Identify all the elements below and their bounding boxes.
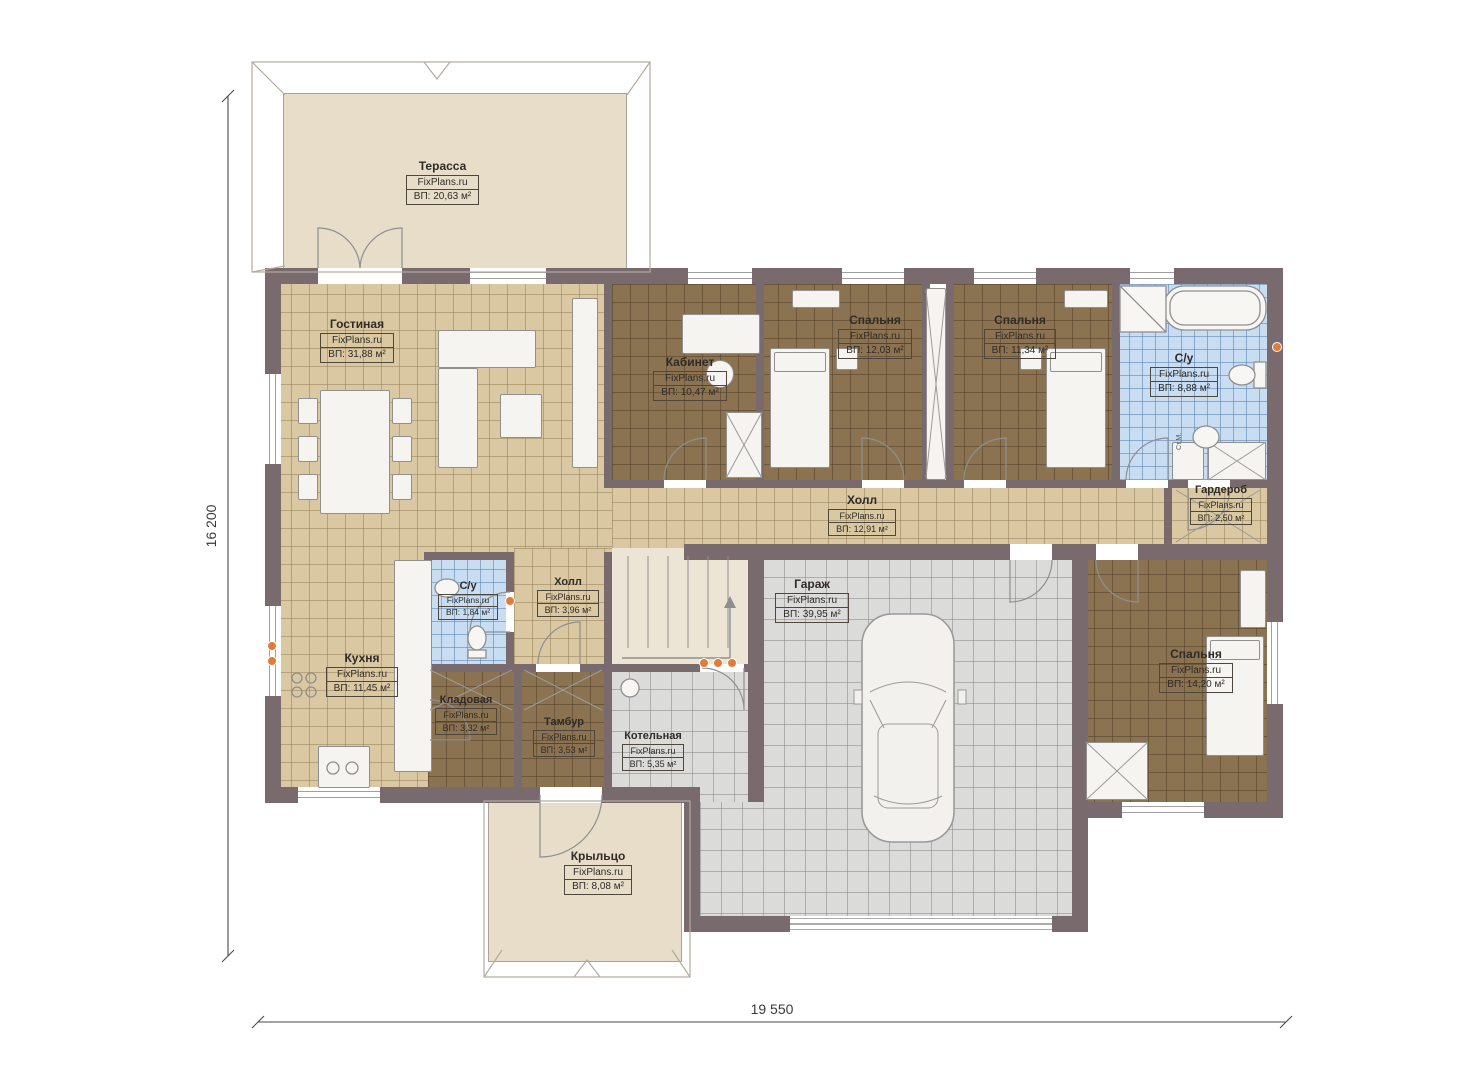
watermark: FixPlans.ru bbox=[534, 731, 595, 744]
stairs-area bbox=[612, 548, 752, 672]
kitchen-appliance bbox=[318, 746, 370, 788]
room-name: Гостиная bbox=[296, 318, 418, 332]
room-label-storage: Кладовая FixPlans.ru ВП: 3,32 м² bbox=[412, 694, 520, 736]
room-name: Гардероб bbox=[1172, 484, 1270, 497]
label-box: FixPlans.ru ВП: 12,91 м² bbox=[828, 509, 896, 537]
label-box: FixPlans.ru ВП: 12,03 м² bbox=[838, 329, 911, 359]
room-area: ВП: 31,88 м² bbox=[321, 348, 392, 362]
bath-cabinet bbox=[1208, 442, 1266, 480]
wall bbox=[1072, 560, 1088, 916]
room-name: Кладовая bbox=[412, 694, 520, 707]
room-area: ВП: 14,20 м² bbox=[1160, 678, 1231, 692]
watermark: FixPlans.ru bbox=[321, 334, 392, 349]
watermark: FixPlans.ru bbox=[654, 372, 725, 387]
room-label-kitchen: Кухня FixPlans.ru ВП: 11,45 м² bbox=[302, 652, 422, 697]
room-name: С/у bbox=[424, 580, 512, 593]
watermark: FixPlans.ru bbox=[839, 330, 910, 345]
dresser bbox=[792, 290, 840, 308]
room-area: ВП: 3,96 м² bbox=[538, 604, 599, 616]
room-name: Спальня bbox=[814, 314, 936, 328]
watermark: FixPlans.ru bbox=[436, 709, 497, 722]
chair bbox=[298, 398, 318, 424]
watermark: FixPlans.ru bbox=[407, 176, 478, 191]
room-name: Крыльцо bbox=[536, 850, 660, 864]
label-box: FixPlans.ru ВП: 10,47 м² bbox=[653, 371, 726, 401]
room-area: ВП: 3,32 м² bbox=[436, 722, 497, 734]
chair bbox=[392, 436, 412, 462]
room-label-wc: С/у FixPlans.ru ВП: 1,84 м² bbox=[424, 580, 512, 621]
floor-plan: Ст.М. bbox=[0, 0, 1474, 1080]
room-label-hall: Холл FixPlans.ru ВП: 12,91 м² bbox=[802, 494, 922, 538]
door-gap bbox=[862, 480, 904, 488]
dimension-height-label: 16 200 bbox=[203, 504, 219, 547]
room-area: ВП: 10,47 м² bbox=[654, 386, 725, 400]
room-area: ВП: 11,45 м² bbox=[327, 682, 398, 696]
label-box: FixPlans.ru ВП: 31,88 м² bbox=[320, 333, 393, 363]
room-name: Спальня bbox=[1134, 648, 1258, 662]
label-box: FixPlans.ru ВП: 3,96 м² bbox=[537, 590, 600, 618]
room-name: Холл bbox=[802, 494, 922, 508]
watermark: FixPlans.ru bbox=[1160, 664, 1231, 679]
watermark: FixPlans.ru bbox=[829, 510, 895, 523]
label-box: FixPlans.ru ВП: 11,34 м² bbox=[984, 329, 1057, 359]
sofa bbox=[438, 368, 478, 468]
door-gap bbox=[700, 664, 744, 672]
room-label-office: Кабинет FixPlans.ru ВП: 10,47 м² bbox=[628, 356, 752, 401]
door-gap bbox=[664, 480, 706, 488]
label-box: FixPlans.ru ВП: 2,50 м² bbox=[1190, 498, 1253, 526]
wall bbox=[684, 544, 1283, 560]
chair bbox=[298, 436, 318, 462]
dresser bbox=[1240, 570, 1266, 628]
room-label-living: Гостиная FixPlans.ru ВП: 31,88 м² bbox=[296, 318, 418, 363]
room-name: Тамбур bbox=[512, 716, 616, 729]
dimension-width-label: 19 550 bbox=[751, 1001, 794, 1017]
wall bbox=[1112, 284, 1120, 480]
window bbox=[470, 268, 546, 284]
label-box: FixPlans.ru ВП: 3,32 м² bbox=[435, 708, 498, 736]
room-name: Гараж bbox=[752, 578, 872, 592]
room-name: Котельная bbox=[594, 730, 712, 743]
chair bbox=[392, 398, 412, 424]
room-name: Холл bbox=[518, 576, 618, 589]
watermark: FixPlans.ru bbox=[1191, 499, 1252, 512]
wall bbox=[604, 284, 612, 488]
chair bbox=[298, 474, 318, 500]
label-box: FixPlans.ru ВП: 5,35 м² bbox=[622, 744, 685, 772]
room-label-bedroom3: Спальня FixPlans.ru ВП: 14,20 м² bbox=[1134, 648, 1258, 693]
room-area: ВП: 11,34 м² bbox=[985, 344, 1056, 358]
door-gap bbox=[1096, 544, 1138, 560]
watermark: FixPlans.ru bbox=[623, 745, 684, 758]
window bbox=[265, 606, 281, 696]
sofa bbox=[438, 330, 536, 368]
room-label-bedroom1: Спальня FixPlans.ru ВП: 12,03 м² bbox=[814, 314, 936, 359]
washing-machine-label: Ст.М. bbox=[1176, 433, 1183, 450]
watermark: FixPlans.ru bbox=[1151, 368, 1217, 383]
watermark: FixPlans.ru bbox=[538, 591, 599, 604]
watermark: FixPlans.ru bbox=[985, 330, 1056, 345]
room-area: ВП: 2,50 м² bbox=[1191, 512, 1252, 524]
label-box: FixPlans.ru ВП: 39,95 м² bbox=[775, 593, 848, 623]
wall bbox=[424, 552, 514, 560]
room-name: Терасса bbox=[380, 160, 505, 174]
room-area: ВП: 1,84 м² bbox=[439, 607, 497, 619]
door-gap bbox=[964, 480, 1006, 488]
room-area: ВП: 3,53 м² bbox=[534, 744, 595, 756]
window bbox=[1122, 802, 1204, 818]
room-area: ВП: 5,35 м² bbox=[623, 758, 684, 770]
watermark: FixPlans.ru bbox=[776, 594, 847, 609]
room-label-porch: Крыльцо FixPlans.ru ВП: 8,08 м² bbox=[536, 850, 660, 895]
watermark: FixPlans.ru bbox=[565, 866, 631, 881]
label-box: FixPlans.ru ВП: 3,53 м² bbox=[533, 730, 596, 758]
door-gap bbox=[536, 664, 580, 672]
label-box: FixPlans.ru ВП: 1,84 м² bbox=[438, 594, 498, 621]
room-area: ВП: 39,95 м² bbox=[776, 608, 847, 622]
window bbox=[1130, 268, 1174, 284]
room-name: Кабинет bbox=[628, 356, 752, 370]
label-box: FixPlans.ru ВП: 20,63 м² bbox=[406, 175, 479, 205]
room-area: ВП: 8,88 м² bbox=[1151, 382, 1217, 396]
watermark: FixPlans.ru bbox=[439, 595, 497, 608]
terrace-door-opening bbox=[318, 268, 402, 284]
chair bbox=[392, 474, 412, 500]
room-label-hall2: Холл FixPlans.ru ВП: 3,96 м² bbox=[518, 576, 618, 618]
room-area: ВП: 20,63 м² bbox=[407, 190, 478, 204]
room-label-bedroom2: Спальня FixPlans.ru ВП: 11,34 м² bbox=[958, 314, 1082, 359]
window bbox=[842, 268, 904, 284]
room-label-wardrobe: Гардероб FixPlans.ru ВП: 2,50 м² bbox=[1172, 484, 1270, 526]
wall bbox=[265, 268, 281, 803]
label-box: FixPlans.ru ВП: 8,08 м² bbox=[564, 865, 632, 895]
tv-console bbox=[572, 298, 598, 468]
wall bbox=[684, 787, 700, 932]
window bbox=[688, 268, 752, 284]
wall bbox=[1164, 480, 1172, 544]
room-name: Спальня bbox=[958, 314, 1082, 328]
room-area: ВП: 12,91 м² bbox=[829, 523, 895, 535]
desk bbox=[682, 314, 760, 354]
room-name: С/у bbox=[1128, 352, 1240, 366]
room-area: ВП: 12,03 м² bbox=[839, 344, 910, 358]
room-label-terrace: Терасса FixPlans.ru ВП: 20,63 м² bbox=[380, 160, 505, 205]
wardrobe-cabinet bbox=[1086, 742, 1148, 800]
garage-door-opening bbox=[790, 916, 1052, 932]
room-name: Кухня bbox=[302, 652, 422, 666]
window bbox=[974, 268, 1036, 284]
door-gap bbox=[1126, 480, 1168, 488]
window bbox=[265, 374, 281, 464]
room-label-garage: Гараж FixPlans.ru ВП: 39,95 м² bbox=[752, 578, 872, 623]
armchair bbox=[500, 394, 542, 438]
wall bbox=[1267, 268, 1283, 818]
label-box: FixPlans.ru ВП: 11,45 м² bbox=[326, 667, 399, 697]
window bbox=[298, 787, 380, 803]
window bbox=[1267, 622, 1283, 704]
door-gap bbox=[1010, 544, 1052, 560]
label-box: FixPlans.ru ВП: 8,88 м² bbox=[1150, 367, 1218, 397]
room-area: ВП: 8,08 м² bbox=[565, 880, 631, 894]
entrance-door-opening bbox=[540, 787, 602, 803]
room-label-bathroom: С/у FixPlans.ru ВП: 8,88 м² bbox=[1128, 352, 1240, 397]
dining-table bbox=[320, 390, 390, 514]
watermark: FixPlans.ru bbox=[327, 668, 398, 683]
cabinet bbox=[726, 412, 762, 478]
room-label-boiler: Котельная FixPlans.ru ВП: 5,35 м² bbox=[594, 730, 712, 772]
label-box: FixPlans.ru ВП: 14,20 м² bbox=[1159, 663, 1232, 693]
wall bbox=[946, 284, 954, 480]
dresser bbox=[1064, 290, 1108, 308]
